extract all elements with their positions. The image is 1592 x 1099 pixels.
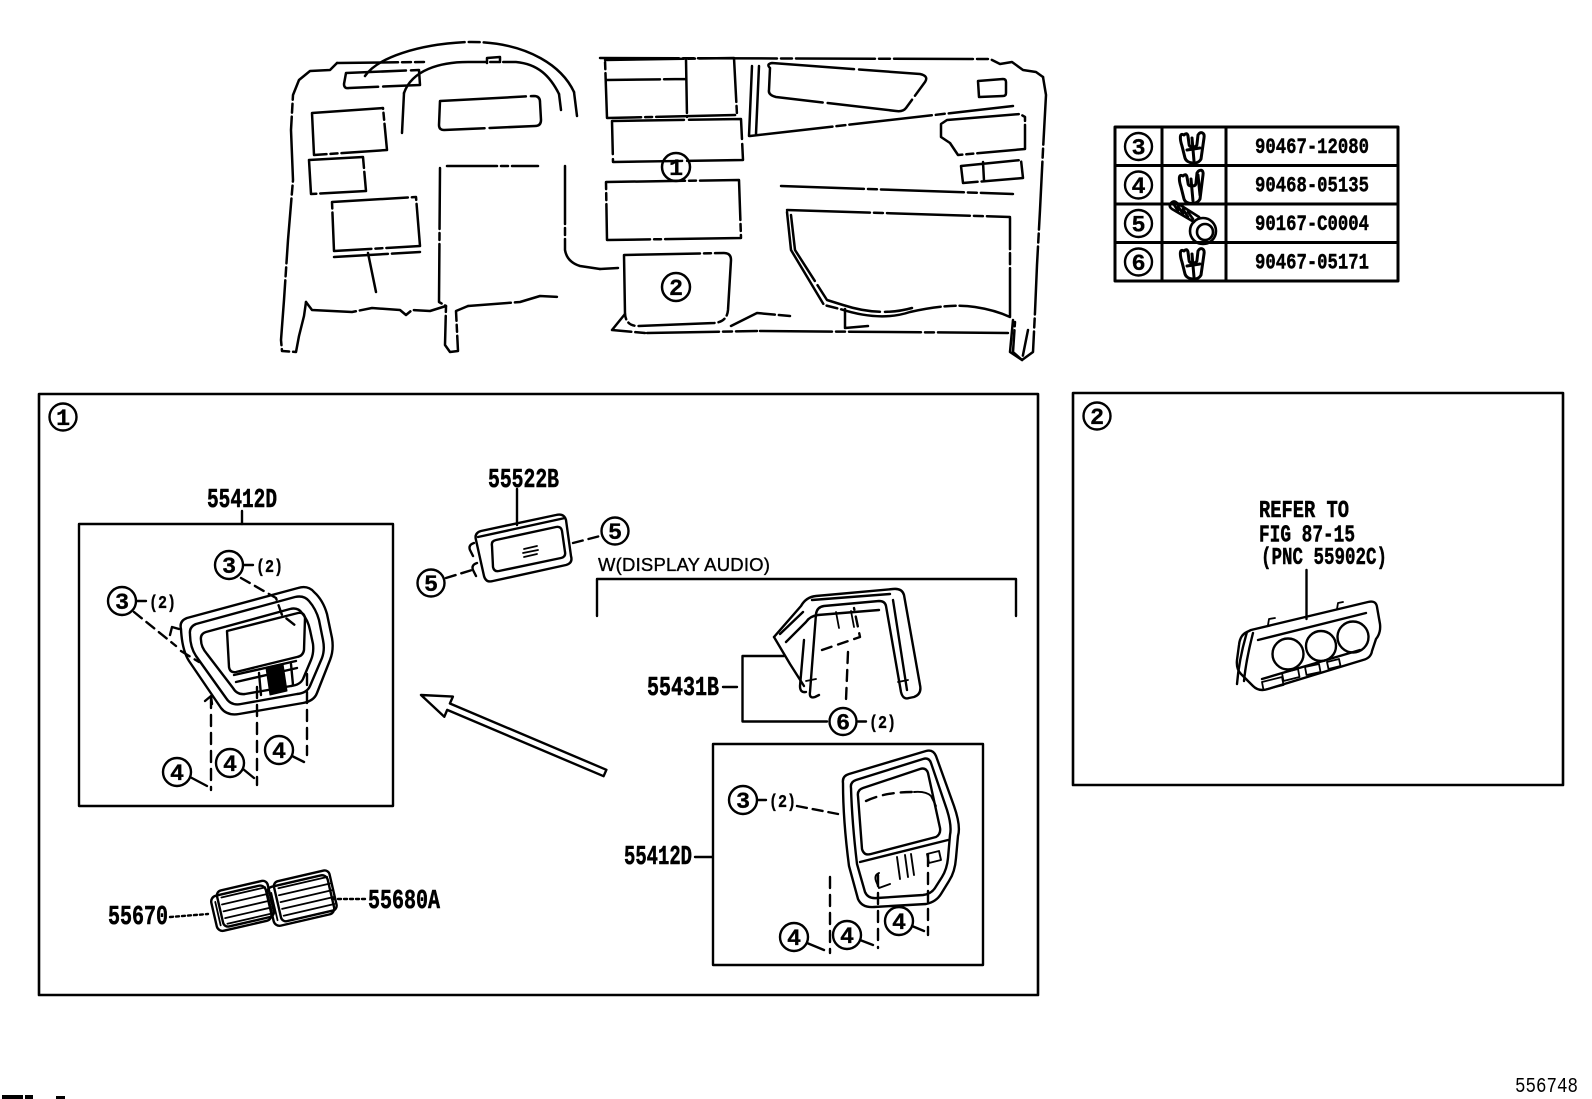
svg-text:W(DISPLAY AUDIO): W(DISPLAY AUDIO) <box>598 554 770 575</box>
svg-text:5: 5 <box>424 572 438 599</box>
svg-text:90468-05135: 90468-05135 <box>1255 174 1369 199</box>
svg-text:3: 3 <box>736 789 750 816</box>
svg-text:REFER TO: REFER TO <box>1259 498 1349 525</box>
svg-text:3: 3 <box>1131 136 1145 163</box>
svg-text:6: 6 <box>836 711 850 738</box>
svg-text:4: 4 <box>1131 174 1145 201</box>
svg-text:1: 1 <box>56 406 70 433</box>
svg-text:4: 4 <box>787 926 801 953</box>
svg-text:(PNC 55902C): (PNC 55902C) <box>1261 545 1387 572</box>
svg-text:4: 4 <box>223 752 237 779</box>
svg-text:55431B: 55431B <box>647 674 719 704</box>
svg-text:4: 4 <box>840 924 854 951</box>
svg-text:90467-12080: 90467-12080 <box>1255 135 1369 160</box>
svg-text:(2): (2) <box>869 714 896 734</box>
svg-text:3: 3 <box>222 554 236 581</box>
svg-text:5: 5 <box>1131 213 1145 240</box>
svg-text:4: 4 <box>170 761 184 788</box>
svg-text:55670: 55670 <box>108 903 168 933</box>
svg-text:55680A: 55680A <box>368 887 441 917</box>
svg-text:5: 5 <box>608 520 622 547</box>
svg-text:4: 4 <box>272 739 286 766</box>
svg-text:90467-05171: 90467-05171 <box>1255 251 1369 276</box>
svg-text:4: 4 <box>892 910 906 937</box>
svg-text:(2): (2) <box>149 594 176 614</box>
svg-text:2: 2 <box>669 276 683 303</box>
svg-text:556748: 556748 <box>1515 1076 1578 1099</box>
svg-text:3: 3 <box>115 590 129 617</box>
svg-text:90167-C0004: 90167-C0004 <box>1255 212 1369 237</box>
svg-text:55412D: 55412D <box>624 843 692 873</box>
svg-text:6: 6 <box>1131 251 1145 278</box>
svg-text:1: 1 <box>669 156 683 183</box>
svg-text:(2): (2) <box>256 558 283 578</box>
svg-text:2: 2 <box>1090 405 1104 432</box>
svg-text:(2): (2) <box>769 793 796 813</box>
svg-text:55522B: 55522B <box>488 466 559 496</box>
